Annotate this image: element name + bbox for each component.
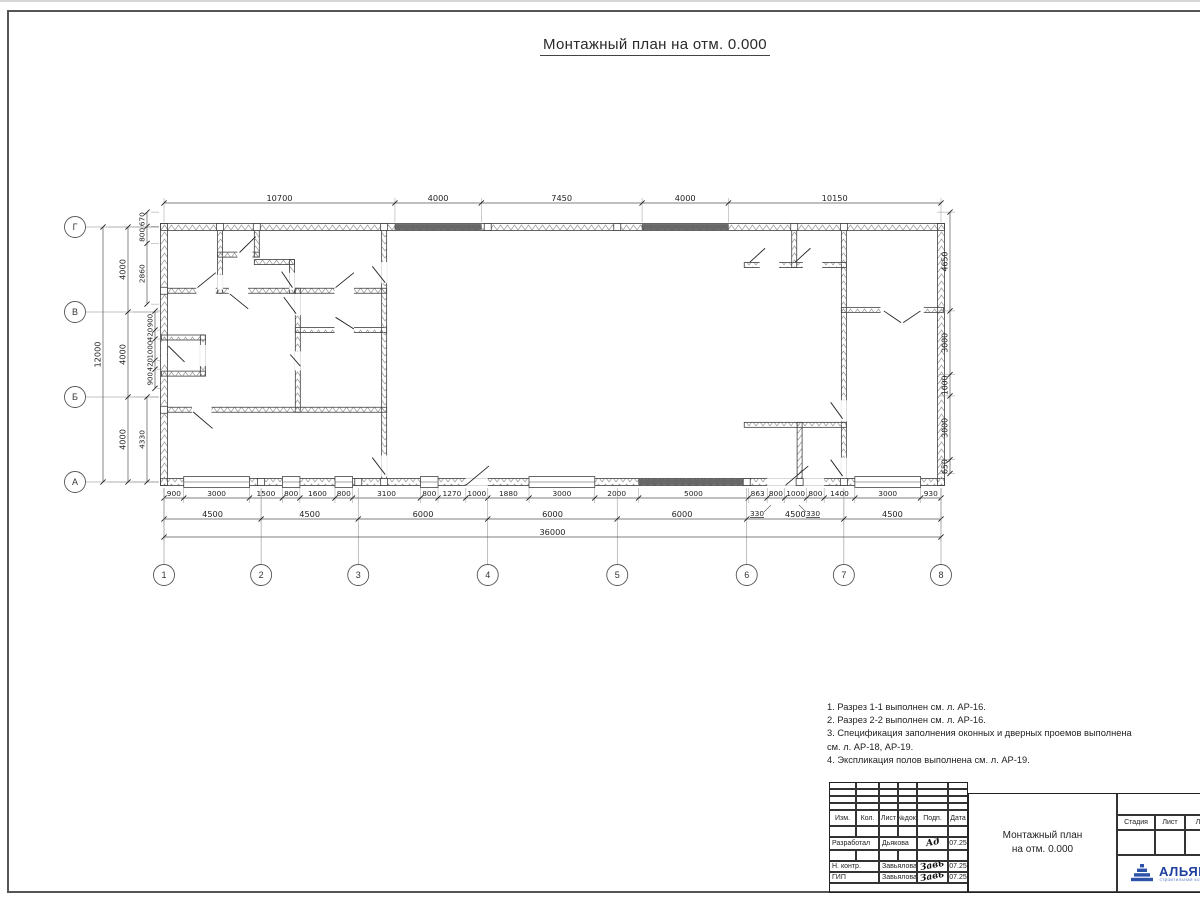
dim-label: 5000 [684, 489, 703, 498]
dim-label: 1400 [830, 489, 849, 498]
dim-label: 2000 [607, 489, 626, 498]
dim-label: 800 [138, 228, 147, 242]
glazed-band [642, 225, 728, 230]
wall-opening [767, 478, 785, 486]
door-swing [795, 248, 810, 262]
column-marker [796, 479, 803, 486]
column-marker [840, 479, 847, 486]
wall [161, 224, 945, 231]
dim-label: 670 [138, 212, 147, 226]
door-swing [168, 346, 184, 362]
wall-opening [807, 478, 825, 486]
axis-label: 8 [938, 570, 943, 580]
column-marker [743, 479, 750, 486]
column-marker [840, 224, 847, 231]
door-swings [168, 237, 920, 486]
glazed-band [639, 480, 749, 485]
axis-bubbles: 12345678ГВБА [65, 217, 952, 586]
dim-label: 1000 [467, 489, 486, 498]
wall-opening [217, 275, 223, 290]
note-line: 2. Разрез 2-2 выполнен см. л. АР-16. [827, 714, 1167, 727]
dim-label: 36000 [539, 527, 565, 537]
column-marker [381, 224, 388, 231]
dim-label: 1000 [786, 489, 805, 498]
dim-label: 2860 [138, 264, 147, 283]
dim-label: 4500 [202, 509, 223, 519]
tb-left-outline [829, 782, 968, 893]
title-block: Изм. Кол. Лист №док. Подп. Дата Разработ… [829, 782, 1200, 893]
dim-label: 3000 [207, 489, 226, 498]
axis-label: 7 [841, 570, 846, 580]
drawing-sheet: { "sheet": { "title": "Монтажный план на… [0, 0, 1200, 900]
axis-label: Г [73, 222, 78, 232]
dim-label: 1270 [443, 489, 462, 498]
door-swing [831, 460, 843, 476]
door-swing [750, 248, 765, 262]
axis-label: 5 [615, 570, 620, 580]
door-openings [161, 251, 924, 486]
dim-label: 7450 [551, 193, 572, 203]
column-marker [253, 224, 260, 231]
dim-label: 3000 [941, 418, 950, 438]
axis-label: 3 [356, 570, 361, 580]
axis-label: В [72, 307, 78, 317]
dim-label: 1880 [499, 489, 518, 498]
notes: 1. Разрез 1-1 выполнен см. л. АР-16.2. Р… [827, 701, 1167, 767]
walls [161, 224, 945, 486]
tb-right-outline [968, 793, 1200, 893]
wall-opening [803, 261, 822, 269]
door-swing [831, 402, 843, 418]
door-swing [197, 273, 215, 288]
dim-label: 3000 [878, 489, 897, 498]
note-line: 4. Экспликация полов выполнена см. л. АР… [827, 754, 1167, 767]
door-swing [284, 297, 296, 314]
wall-opening [335, 287, 354, 295]
dim-label: 650 [941, 459, 950, 474]
dim-label: 4000 [118, 429, 128, 450]
wall-opening [295, 294, 301, 315]
dim-label: 420 [147, 358, 155, 371]
column-marker [791, 224, 798, 231]
wall-opening [881, 306, 924, 314]
dim-label: 10150 [822, 193, 848, 203]
dim-label: 4500 [785, 509, 806, 519]
dim-label: 4000 [118, 259, 128, 280]
door-swing [240, 237, 256, 253]
dim-label: 900 [147, 372, 155, 385]
column-marker [258, 479, 265, 486]
dim-label: 1500 [257, 489, 276, 498]
dim-label: 4000 [118, 344, 128, 365]
dim-label: 6000 [542, 509, 563, 519]
dim-callout: 330 [806, 509, 820, 518]
glazed-band [395, 225, 481, 230]
axis-label: Б [72, 392, 78, 402]
column-marker [484, 224, 491, 231]
dim-label: 420 [147, 328, 155, 341]
wall-opening [381, 262, 387, 283]
dim-label: 863 [751, 489, 765, 498]
dim-label: 3100 [377, 489, 396, 498]
note-line: 3. Спецификация заполнения оконных и две… [827, 727, 1167, 740]
dim-label: 1000 [147, 341, 155, 359]
dim-label: 4500 [299, 509, 320, 519]
dim-label: 4500 [882, 509, 903, 519]
dim-label: 900 [167, 489, 181, 498]
door-swing [336, 273, 354, 288]
axis-label: 4 [485, 570, 490, 580]
dim-label: 4330 [138, 430, 147, 449]
dim-label: 800 [422, 489, 436, 498]
wall [162, 335, 206, 340]
axis-label: 6 [744, 570, 749, 580]
door-swing [193, 412, 212, 429]
dim-label: 930 [924, 489, 938, 498]
door-swing [230, 294, 248, 309]
dim-label: 3000 [552, 489, 571, 498]
dim-label: 3000 [941, 333, 950, 353]
column-marker [217, 224, 224, 231]
dim-label: 800 [337, 489, 351, 498]
dim-label: 800 [769, 489, 783, 498]
wall-opening [200, 345, 206, 366]
dim-label: 1000 [941, 375, 950, 395]
wall-opening [760, 261, 779, 269]
wall [162, 371, 206, 376]
dim-label: 4000 [428, 193, 449, 203]
column-marker [355, 479, 362, 486]
note-line: см. л. АР-18, АР-19. [827, 741, 1167, 754]
wall-opening [161, 343, 167, 364]
axis-label: А [72, 477, 78, 487]
note-line: 1. Разрез 1-1 выполнен см. л. АР-16. [827, 701, 1167, 714]
dim-label: 800 [808, 489, 822, 498]
dim-label: 6000 [413, 509, 434, 519]
column-marker [381, 479, 388, 486]
dim-label: 1600 [308, 489, 327, 498]
dim-label: 4650 [941, 252, 950, 272]
wall [254, 260, 294, 265]
wall [744, 422, 846, 427]
axis-label: 2 [259, 570, 264, 580]
column-marker [614, 224, 621, 231]
dim-label: 6000 [672, 509, 693, 519]
column-marker [161, 287, 168, 294]
wall-opening [229, 287, 248, 295]
dim-label: 10700 [266, 193, 292, 203]
wall-opening [192, 406, 211, 414]
wall-opening [196, 287, 215, 295]
dim-label: 900 [147, 314, 155, 327]
dim-label: 4000 [675, 193, 696, 203]
column-marker [161, 406, 168, 413]
axis-label: 1 [161, 570, 166, 580]
dim-label: 12000 [93, 341, 103, 367]
dim-callout: 330 [750, 509, 764, 518]
dim-label: 800 [284, 489, 298, 498]
